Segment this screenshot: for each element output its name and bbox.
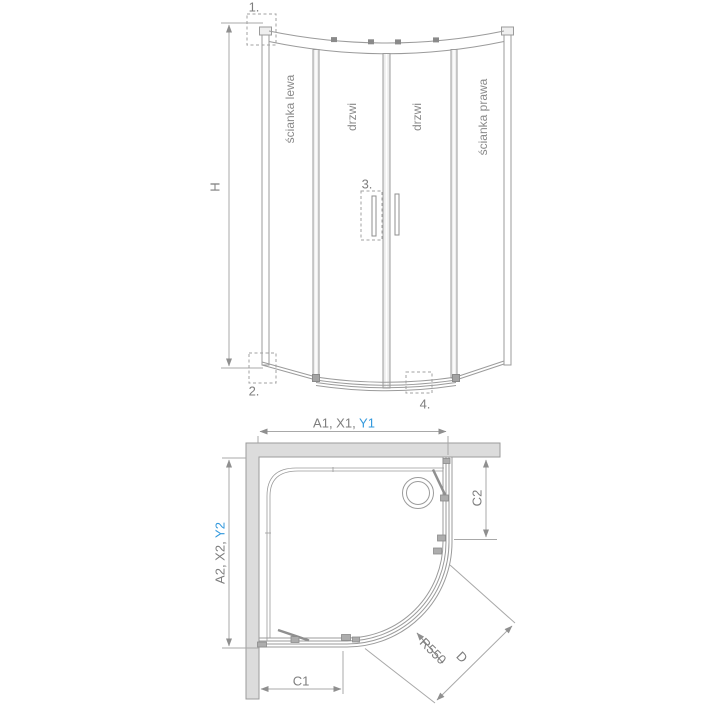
door-hardware-right [433, 459, 450, 555]
callout-boxes [247, 14, 432, 393]
height-dim-label: H [209, 182, 222, 191]
right-door-handle [395, 194, 399, 235]
diagonal-dimension [365, 565, 515, 703]
door-left-label: drzwi [346, 103, 358, 131]
c2-dim-label: C2 [471, 490, 484, 507]
c1-dim-label: C1 [293, 675, 310, 688]
drain [403, 478, 434, 509]
bottom-guide-left [313, 375, 320, 382]
depth-dim-label: A2, X2, Y2 [214, 522, 227, 584]
door-right-label: drzwi [411, 103, 423, 131]
width-dim-highlight: Y1 [359, 416, 375, 431]
right-profile-post [504, 30, 511, 365]
width-dim-prefix: A1, X1, [313, 416, 359, 431]
callout-3-label: 3. [362, 178, 373, 191]
technical-drawing-shower-enclosure: 1. 2. 3. 4. H ścianka lewa drzwi drzwi ś… [0, 0, 720, 720]
glass-dividers [313, 50, 457, 389]
bottom-guide-right [453, 375, 460, 382]
callout-2-label: 2. [249, 385, 260, 398]
front-elevation-view [221, 14, 514, 393]
width-dim-label: A1, X1, Y1 [313, 417, 375, 430]
depth-dim-prefix: A2, X2, [213, 538, 228, 584]
panel-left-label: ścianka lewa [284, 75, 296, 144]
callout-4-label: 4. [420, 398, 431, 411]
callout-1-label: 1. [249, 1, 260, 14]
drawing-svg [0, 0, 720, 720]
height-dimension [221, 23, 263, 368]
top-rail-outer [269, 31, 504, 43]
depth-dim-highlight: Y2 [213, 522, 228, 538]
plan-view [222, 432, 515, 704]
left-door-handle [372, 196, 376, 236]
left-profile-post [262, 30, 269, 365]
panel-right-label: ścianka prawa [477, 79, 489, 156]
